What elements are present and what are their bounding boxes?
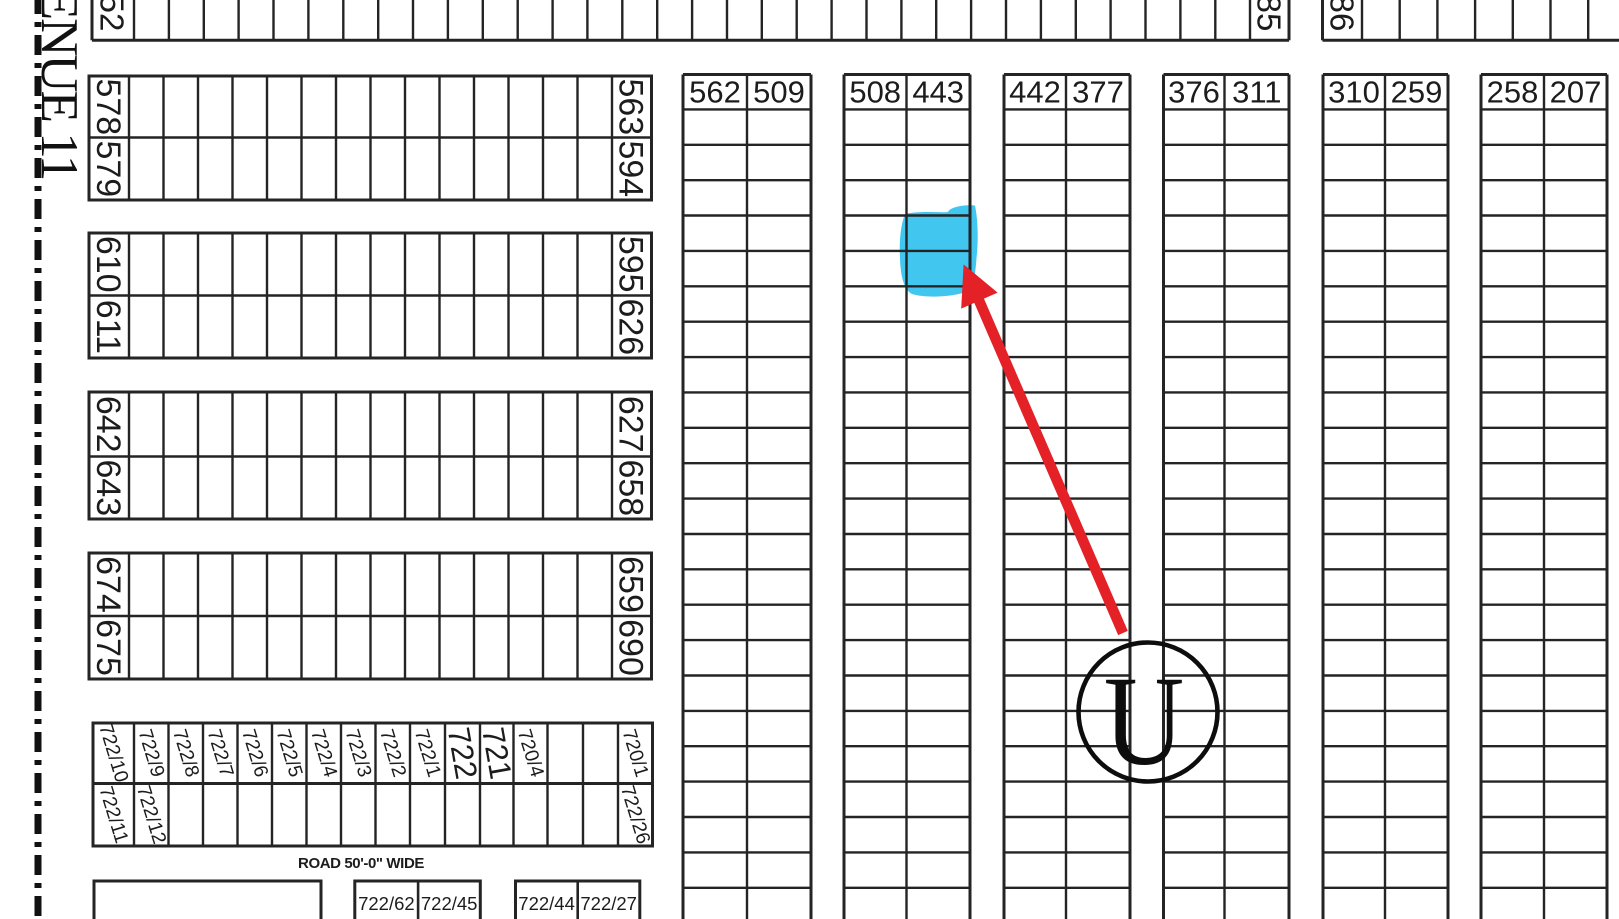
svg-text:627: 627 bbox=[612, 396, 650, 453]
svg-text:442: 442 bbox=[1009, 75, 1061, 110]
svg-text:376: 376 bbox=[1168, 75, 1220, 110]
svg-text:310: 310 bbox=[1328, 75, 1380, 110]
svg-text:509: 509 bbox=[753, 75, 805, 110]
svg-text:643: 643 bbox=[89, 459, 127, 516]
svg-text:207: 207 bbox=[1550, 75, 1602, 110]
svg-text:85: 85 bbox=[1251, 0, 1288, 31]
svg-text:258: 258 bbox=[1487, 75, 1539, 110]
svg-text:578: 578 bbox=[89, 78, 127, 135]
svg-text:675: 675 bbox=[89, 619, 127, 676]
svg-text:659: 659 bbox=[612, 556, 650, 613]
svg-text:52: 52 bbox=[94, 0, 131, 31]
svg-text:674: 674 bbox=[89, 556, 127, 613]
svg-text:AVENUE 11: AVENUE 11 bbox=[30, 0, 88, 179]
svg-text:722/62: 722/62 bbox=[358, 893, 415, 914]
svg-text:722/44: 722/44 bbox=[518, 893, 575, 914]
svg-text:562: 562 bbox=[689, 75, 741, 110]
svg-text:443: 443 bbox=[912, 75, 964, 110]
svg-text:642: 642 bbox=[89, 396, 127, 453]
svg-text:ROAD 50'-0" WIDE: ROAD 50'-0" WIDE bbox=[298, 855, 424, 872]
svg-text:259: 259 bbox=[1391, 75, 1443, 110]
svg-text:U: U bbox=[1104, 650, 1184, 792]
svg-text:722/45: 722/45 bbox=[421, 893, 478, 914]
svg-text:611: 611 bbox=[89, 300, 127, 354]
svg-text:508: 508 bbox=[849, 75, 901, 110]
svg-text:626: 626 bbox=[612, 298, 650, 355]
svg-text:690: 690 bbox=[612, 619, 650, 676]
svg-text:722/27: 722/27 bbox=[580, 893, 637, 914]
svg-text:658: 658 bbox=[612, 459, 650, 516]
svg-text:610: 610 bbox=[89, 236, 127, 293]
svg-text:579: 579 bbox=[89, 140, 127, 197]
svg-text:594: 594 bbox=[612, 140, 650, 197]
svg-text:311: 311 bbox=[1232, 75, 1281, 110]
svg-text:563: 563 bbox=[612, 78, 650, 135]
svg-text:86: 86 bbox=[1324, 0, 1361, 31]
svg-text:377: 377 bbox=[1072, 75, 1124, 110]
svg-text:595: 595 bbox=[612, 236, 650, 293]
